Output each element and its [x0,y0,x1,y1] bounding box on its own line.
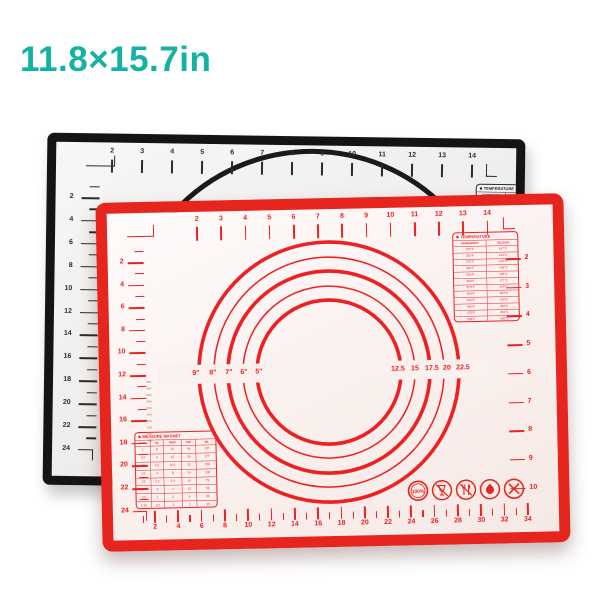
ruler-tick [171,160,173,173]
ruler-number: 22 [112,484,128,492]
corner-bracket [486,164,497,177]
ruler-tick [136,341,145,342]
table-cell: 5.3 [151,462,164,470]
ruler-tick [131,420,147,422]
ruler-number: 24 [401,518,421,526]
ruler-number: 13 [432,152,452,160]
ruler-number: 22 [378,519,398,527]
ruler-tick [410,505,412,517]
ruler-number: 2 [525,254,539,262]
table-cell: 59 [197,485,218,493]
column-header: TBSP [163,440,181,446]
ruler-tick [433,505,435,517]
ruler-number: 6 [109,304,125,312]
ruler-number: 34 [518,516,538,524]
table-cell: 1/2 [151,502,164,510]
ruler-number: 10 [529,483,543,491]
ruler-number: 8 [282,150,302,158]
ruler-number: 6 [55,239,73,247]
ruler-tick [224,509,226,521]
ruler-tick [411,164,413,177]
ruler-tick [510,459,525,461]
corner-bracket [503,217,515,229]
ruler-number: 2 [56,193,74,201]
ruler-number: 10 [380,212,400,220]
ruler-tick [293,225,295,239]
ruler-tick [283,513,284,520]
ruler-number: 20 [53,399,71,407]
ruler-tick [128,285,144,287]
conversion-box-content: MEASURE MAGNETCUPOZTBSPTSPML1816482373/4… [135,431,218,509]
ruler-tick [390,223,392,237]
table-cell: 1 [151,494,164,502]
ruler-number: 6 [192,523,212,531]
ruler-tick [508,373,523,375]
ruler-tick [503,503,505,515]
ruler-number: 24 [113,507,129,515]
corner-bracket [78,449,93,460]
table-cell: 15 [197,500,217,508]
table-cell: 1/16 [137,502,152,509]
ruler-number: 5 [526,340,540,348]
ruler-number: 32 [495,516,515,524]
ruler-number: 26 [425,518,445,526]
ruler-number: 4 [162,148,182,156]
ruler-tick [321,163,323,176]
red-pastry-mat: 9"8"7"6"5"12.51517.52022.5 2345678910111… [95,193,570,552]
ruler-number: 8 [528,426,542,434]
ruler-tick [294,508,296,520]
table-row: 500°F260°C [455,316,520,323]
ruler-tick [376,511,377,518]
table-row: 1/161/21315 [137,500,218,509]
ruler-number: 5 [259,214,279,222]
ruler-tick [387,506,389,518]
ruler-number: 12 [262,521,282,529]
table-cell: 1/3 [136,478,151,486]
ruler-number: 16 [111,417,127,425]
table-cell: 16 [182,477,197,485]
table-cell: 12 [164,454,182,462]
table-cell: 8 [150,446,163,454]
ruler-tick [86,438,96,439]
ruler-tick [135,296,144,297]
ruler-number: 9 [312,150,332,158]
ruler-number: 20 [355,519,375,527]
ruler-number: 11 [404,211,424,219]
ruler-number: 10 [109,349,125,357]
table-cell: 3/4 [136,454,151,462]
ruler-number: 12 [402,152,422,160]
corner-bracket [127,225,154,238]
table-cell: 1/2 [136,470,151,478]
ruler-tick [135,273,144,274]
ruler-tick [141,160,143,173]
ruler-tick [134,251,143,252]
column-header: OZ [150,440,163,446]
ruler-number: 7 [308,213,328,221]
ruler-number: 10 [54,284,72,292]
ruler-tick [317,224,319,238]
ruler-tick [364,506,366,518]
table-cell: 24 [182,469,197,477]
box-title-text: TEMPERATURE [484,186,514,191]
table-cell: 16 [163,446,181,454]
ruler-number: 2 [108,258,124,266]
ruler-tick [138,409,147,410]
ruler-tick [196,227,198,241]
table-cell: 118 [197,469,218,477]
table-cell: 36 [182,453,197,461]
ruler-tick [236,514,237,521]
ruler-tick [492,509,493,516]
table-cell: 30 [197,493,218,501]
ruler-tick [87,369,97,370]
ruler-number: 14 [285,521,305,529]
ruler-number: 7 [252,150,272,158]
ruler-tick [78,426,96,428]
ruler-tick [80,335,98,337]
ruler-tick [352,512,353,519]
ruler-tick [317,507,319,519]
table-cell: 1 [136,446,151,454]
ruler-tick [87,392,97,393]
ruler-number: 4 [108,281,124,289]
ruler-number: 2 [145,524,165,532]
ruler-number: 6 [527,368,541,376]
box-title-text: TEMPERATURE [460,234,490,239]
ruler-number: 20 [112,462,128,470]
safety-icons: 100% [407,478,524,501]
table-cell: 237 [196,445,217,453]
ruler-tick [177,510,179,522]
table-cell: 6 [150,454,163,462]
table-cell: 5.3 [164,477,182,485]
ruler-tick [80,312,98,314]
dot-icon [480,187,483,190]
ruler-tick [201,161,203,174]
ruler-tick [143,516,144,523]
ruler-tick [130,352,146,354]
ruler-number: 18 [53,376,71,384]
ruler-tick [399,511,400,518]
size-title: 11.8×15.7in [20,40,211,80]
ruler-tick [329,512,330,519]
ruler-number: 8 [332,213,352,221]
table-cell: 2.6 [151,478,164,486]
ruler-tick [154,511,156,523]
ruler-number: 4 [526,311,540,319]
ruler-tick [351,163,353,176]
ruler-number: 3 [525,282,539,290]
ruler-number: 7 [528,397,542,405]
ruler-tick [446,510,447,517]
ruler-number: 24 [52,445,70,453]
ruler-tick [381,163,383,176]
ruler-tick [129,330,145,332]
ruler-number: 9 [356,212,376,220]
ruler-tick [79,357,97,359]
ruler-tick [527,503,529,515]
ruler-tick [438,222,440,236]
table-cell: 48 [181,445,196,453]
ruler-number: 12 [110,371,126,379]
ruler-tick [220,226,222,240]
ruler-number: 4 [55,216,73,224]
ruler-tick [79,380,97,382]
ruler-number: 4 [235,215,255,223]
ruler-tick [244,226,246,240]
product-photo: 11.8×15.7in 2345678910111213142468101214… [0,0,600,600]
ruler-tick [213,515,214,522]
table-cell: 500°F [455,316,488,322]
ruler-tick [291,162,293,175]
corner-bracket [86,155,115,166]
ruler-tick [82,197,100,199]
ruler-number: 22 [52,422,70,430]
ruler-tick [306,513,307,520]
do-not-cut-icon [503,478,524,499]
ruler-number: 3 [211,215,231,223]
ruler-tick [130,375,146,377]
ruler-number: 3 [132,148,152,156]
ruler-tick [365,223,367,237]
ruler-number: 10 [342,151,362,159]
ruler-tick [515,508,516,515]
ruler-tick [247,509,249,521]
ruler-number: 16 [53,353,71,361]
column-header: CUP [135,440,150,446]
ruler-number: 12 [54,307,72,315]
table-cell: 2 [151,486,164,494]
ruler-number: 14 [462,152,482,160]
ruler-tick [87,415,97,416]
ruler-number: 8 [215,522,235,530]
ruler-tick [441,164,443,177]
ruler-number: 14 [110,394,126,402]
ruler-tick [80,289,98,291]
ruler-number: 10 [238,522,258,530]
dot-icon [138,435,141,438]
ruler-tick [340,507,342,519]
table-cell: 6 [182,493,197,501]
ruler-tick [480,504,482,516]
ruler-tick [137,364,146,365]
ruler-tick [471,165,473,178]
ruler-number: 2 [102,147,122,155]
ruler-number: 9 [529,455,543,463]
ruler-number: 8 [55,261,73,269]
table-cell: 8 [164,469,182,477]
ruler-tick [231,161,233,174]
svg-text:100%: 100% [412,489,425,495]
heat-resistant-flame-icon [479,479,500,500]
ruler-number: 12 [429,211,449,219]
box-title-text: MEASURE MAGNET [142,433,181,438]
ruler-number: 14 [54,330,72,338]
ruler-tick [130,398,146,400]
ruler-tick [422,510,423,517]
ruler-number: 6 [283,214,303,222]
ruler-tick [88,323,98,324]
ruler-tick [129,307,145,309]
no-wine-glass-icon [431,480,452,501]
table-cell: 10.6 [164,462,182,470]
table-cell: 79 [197,477,218,485]
table-cell: 3 [183,501,198,509]
table-cell: 32 [182,461,197,469]
ruler-tick [509,430,524,432]
ruler-number: 14 [477,210,497,218]
ruler-tick [507,344,522,346]
ruler-number: 18 [111,439,127,447]
ruler-tick [414,222,416,236]
ruler-tick [270,508,272,520]
conversion-box-content: TEMPERATUREFAHRENHEITCELSIUS225°F107°C25… [453,232,520,322]
ruler-tick [259,514,260,521]
ruler-number: 11 [372,151,392,159]
ruler-tick [341,224,343,238]
ruler-tick [457,504,459,516]
corner-bracket [133,511,147,521]
ruler-number: 4 [168,523,188,531]
table-cell: 4 [151,470,164,478]
table-cell: 2 [164,493,182,501]
ruler-tick [137,386,146,387]
table-cell: 12 [182,485,197,493]
ruler-number: 18 [331,520,351,528]
table-cell: 1/8 [137,494,152,502]
column-header: TSP [181,439,196,445]
table-cell: 177 [196,453,217,461]
certified-100-percent-icon: 100% [407,480,428,501]
table-cell: 260°C [488,316,520,323]
ruler-tick [509,402,524,404]
conversion-box: TEMPERATUREFAHRENHEITCELSIUS225°F107°C25… [452,231,520,322]
ruler-number: 13 [453,210,473,218]
ruler-number: 2 [187,216,207,224]
ruler-tick [166,516,167,523]
table-cell: 4 [164,485,182,493]
conversion-box: MEASURE MAGNETCUPOZTBSPTSPML1816482373/4… [134,430,218,509]
table-cell: 158 [197,461,218,469]
table-cell: 2/3 [136,462,151,470]
ruler-tick [189,515,190,522]
ruler-tick [128,262,144,264]
ruler-tick [87,346,97,347]
ruler-tick [201,510,203,522]
ruler-number: 16 [308,520,328,528]
ruler-number: 28 [448,517,468,525]
table-cell: 1/4 [136,486,151,494]
ruler-tick [261,162,263,175]
ruler-number: 6 [222,149,242,157]
ruler-number: 30 [471,517,491,525]
table-cell: 1 [165,501,183,509]
ruler-tick [136,318,145,319]
dot-icon [456,236,459,239]
ruler-tick [469,509,470,516]
no-utensils-icon [455,479,476,500]
ruler-number: 8 [109,326,125,334]
ruler-tick [269,225,271,239]
ruler-tick [90,186,100,187]
ruler-number: 5 [192,149,212,157]
ruler-tick [79,403,97,405]
